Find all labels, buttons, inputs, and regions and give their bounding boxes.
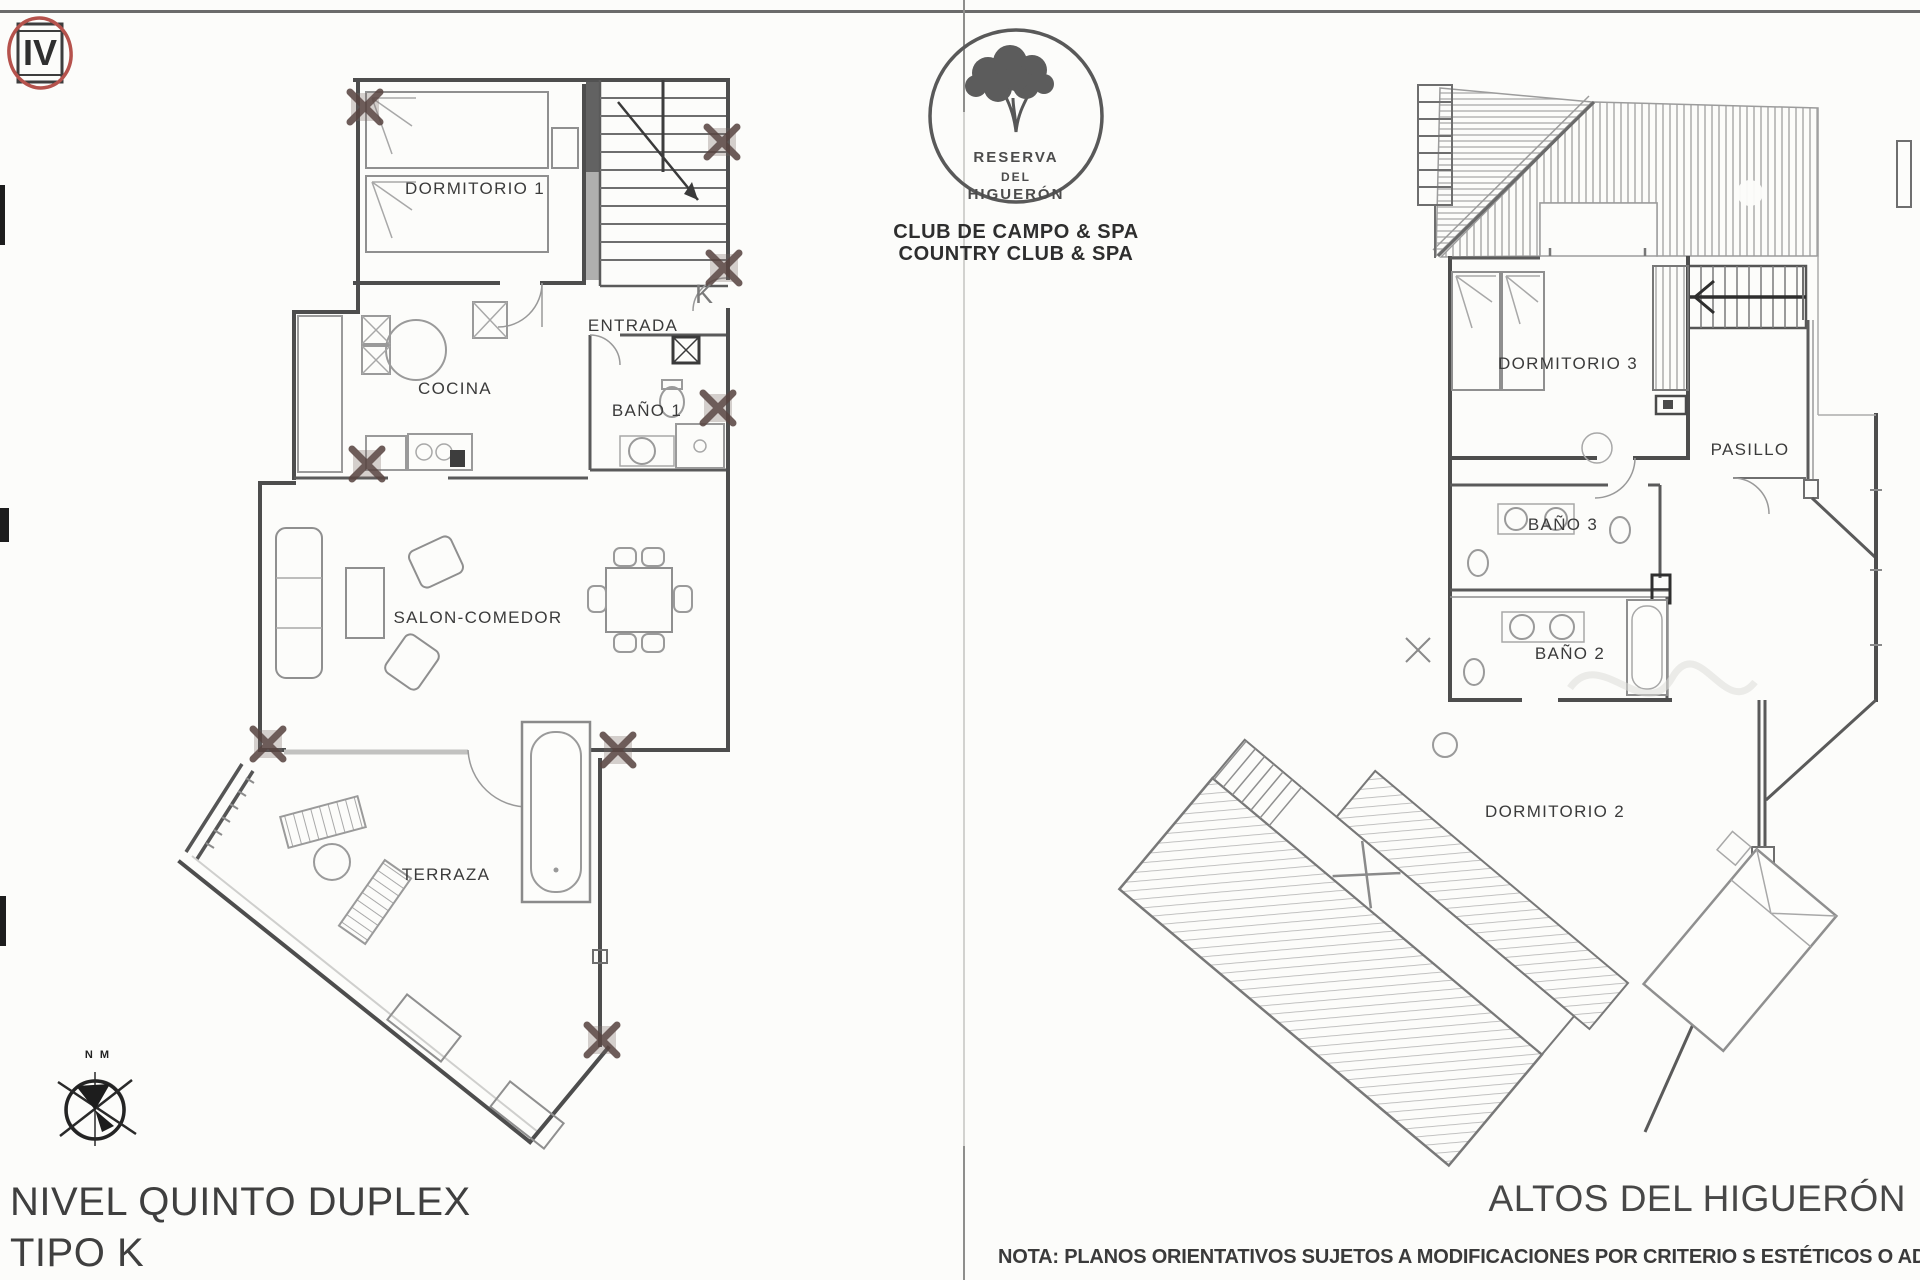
pencil-x-mark-small [1406,638,1430,662]
room-label-bano2: BAÑO 2 [1535,644,1605,663]
logo-name-line2: DEL [1001,170,1031,184]
balcony-door-box [1656,396,1686,414]
scan-artifact [0,508,9,542]
floor-plan-left-nivel-quinto: DORMITORIO 1 ENTRADA COCINA BAÑO 1 SALON… [150,50,790,1180]
page-fold-divider-bottom [963,1146,965,1280]
logo-name-line1: RESERVA [973,149,1058,166]
roof-hatch-areas [1433,88,1818,257]
dormitorio3-beds [1452,272,1769,514]
door-type-label-k: K [695,279,713,309]
logo-name-line3: HIGUERÓN [968,185,1065,203]
room-label-pasillo: PASILLO [1711,440,1790,459]
room-label-dormitorio1: DORMITORIO 1 [405,179,545,198]
balcony-rail-segment [1897,141,1911,207]
scanned-floorplan-page: IV RESERVA DEL HIGUERÓN CLUB DE CAMPO & … [0,0,1920,1280]
development-title: ALTOS DEL HIGUERÓN [1489,1178,1906,1220]
plan-title-line1: NIVEL QUINTO DUPLEX [10,1180,471,1225]
compass-label: N M [85,1049,111,1061]
wardrobe-closet [1653,266,1688,390]
bathtub [522,722,590,902]
floor-plan-right-altos: DORMITORIO 3 PASILLO BAÑO 3 BAÑO 2 DORMI… [1100,60,1920,1190]
dormitorio1-beds [366,92,578,252]
wall-x-marks [253,92,739,1055]
room-label-entrada: ENTRADA [588,316,678,335]
tree-icon [965,45,1054,132]
entrada-closet [673,337,699,363]
room-label-salon: SALON-COMEDOR [394,608,563,627]
room-label-dormitorio3: DORMITORIO 3 [1498,354,1638,373]
room-label-bano3: BAÑO 3 [1528,515,1598,534]
compass-rose-icon: N M [38,1028,158,1158]
dormitorio2-bed [1621,830,1837,1051]
plate-number-stamp: IV [4,14,84,100]
room-label-bano1: BAÑO 1 [612,401,682,420]
staircase-down [1688,266,1806,328]
room-label-cocina: COCINA [418,379,492,398]
side-table [1433,733,1457,757]
plan-title-line2: TIPO K [10,1231,144,1276]
dormitorio2-terrace [1119,694,1628,1179]
scan-artifact [0,185,5,245]
roman-numeral-iv: IV [23,32,57,73]
scan-artifact [0,896,6,946]
door-swings [468,278,726,807]
room-label-terraza: TERRAZA [402,865,490,884]
room-label-dormitorio2: DORMITORIO 2 [1485,802,1625,821]
top-border-rule [0,10,1920,13]
disclaimer-note: NOTA: PLANOS ORIENTATIVOS SUJETOS A MODI… [998,1246,1920,1269]
bano1-fixtures [620,380,724,468]
